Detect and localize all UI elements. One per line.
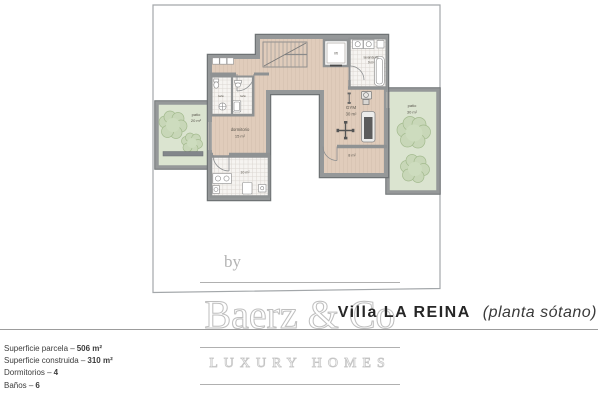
room-area-dormitorio: 15 m² — [235, 134, 246, 139]
listing-floorplan-page: patio 20 m² patio 30 m² — [0, 0, 600, 403]
room-label-patio-right: patio — [408, 103, 417, 108]
sink-icon — [235, 81, 242, 88]
detail-row-banos: Baños –6 — [4, 380, 113, 392]
room-label-gym: GYM — [346, 105, 357, 110]
watermark-by: by — [224, 252, 241, 272]
villa-name: Villa LA REINA — [338, 304, 471, 321]
room-label-bano-right: baño — [240, 94, 246, 98]
detail-value: 310 m² — [87, 356, 112, 365]
room-label-lavanderia: lavanderia — [364, 56, 379, 60]
room-area-storage: 8 m² — [348, 154, 356, 158]
left-patio: patio 20 m² — [157, 103, 210, 167]
detail-label: Superficie parcela – — [4, 344, 75, 353]
detail-label: Dormitorios – — [4, 368, 52, 377]
bathtub-icon — [233, 101, 241, 113]
washer-icon — [353, 40, 385, 49]
vanity-icon — [213, 174, 232, 184]
room-label-patio-left: patio — [192, 112, 201, 117]
detail-value: 4 — [54, 368, 58, 377]
detail-row-dormitorios: Dormitorios –4 — [4, 367, 113, 379]
watermark-rule — [200, 384, 400, 385]
detail-label: Superficie construida – — [4, 356, 85, 365]
watermark-tagline: LUXURY HOMES — [200, 353, 400, 375]
toilet-icon — [213, 186, 220, 194]
wardrobe-icon — [213, 58, 234, 64]
bidet-icon — [243, 183, 253, 195]
toilet-icon — [214, 79, 219, 88]
lift: lift — [324, 40, 348, 66]
right-patio: patio 30 m² — [388, 90, 438, 192]
bathtub-icon — [375, 57, 385, 87]
room-area-patio-right: 30 m² — [407, 110, 418, 115]
watermark-rule — [200, 347, 400, 348]
detail-value: 6 — [35, 381, 39, 390]
room-label-bano-left: baño — [218, 94, 224, 98]
detail-row-parcela: Superficie parcela –506 m² — [4, 343, 113, 355]
room-label-lift: lift — [334, 52, 337, 56]
detail-row-construida: Superficie construida –310 m² — [4, 355, 113, 367]
shower-icon — [259, 185, 267, 193]
shower-icon — [219, 103, 226, 110]
room-area-bathroom: 10 m² — [240, 171, 250, 175]
property-details: Superficie parcela –506 m² Superficie co… — [4, 343, 113, 392]
room-label-dormitorio: dormitorio — [231, 127, 250, 132]
room-area-lavanderia: 9 m² — [368, 61, 374, 65]
watermark-rule — [200, 282, 400, 283]
room-area-gym: 30 m² — [346, 112, 357, 117]
floor-subtitle: (planta sótano) — [483, 304, 597, 321]
detail-value: 506 m² — [77, 344, 102, 353]
bench-icon — [163, 152, 203, 157]
treadmill-icon — [362, 112, 376, 143]
plan-title: Villa LA REINA(planta sótano) — [338, 301, 597, 325]
detail-label: Baños – — [4, 381, 33, 390]
room-area-patio-left: 20 m² — [191, 118, 202, 123]
